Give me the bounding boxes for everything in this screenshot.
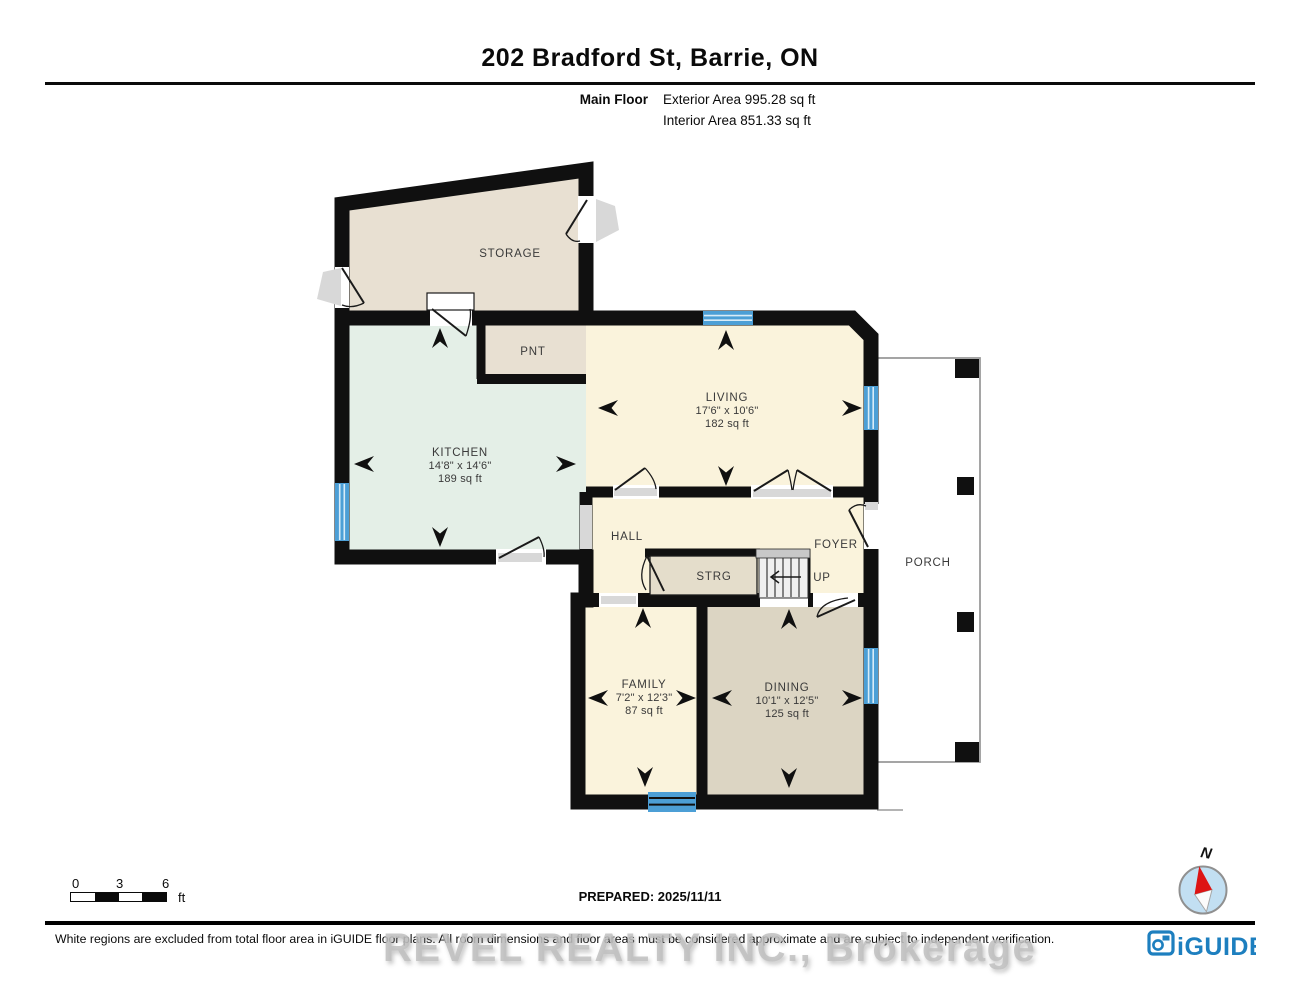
label-family-area: 87 sq ft — [625, 705, 663, 717]
label-porch: PORCH — [905, 557, 951, 569]
label-storage: STORAGE — [479, 248, 541, 260]
opening-hall-kitchen — [580, 505, 592, 549]
label-kitchen-area: 189 sq ft — [438, 473, 482, 485]
label-kitchen: KITCHEN — [432, 447, 488, 459]
label-hall: HALL — [611, 531, 643, 543]
iguide-wordmark: iGUIDE — [1177, 933, 1256, 961]
door-family-top — [599, 593, 638, 607]
window-dining-right — [864, 648, 878, 704]
window-living-right — [864, 386, 878, 430]
label-living: LIVING — [706, 392, 749, 404]
window-kitchen-left — [335, 483, 349, 541]
label-living-area: 182 sq ft — [705, 418, 749, 430]
window-living-top — [703, 311, 753, 325]
label-strg: STRG — [696, 571, 731, 583]
compass-north-label: N — [1199, 844, 1214, 863]
footer-divider — [45, 921, 1255, 925]
prepared-date: PREPARED: 2025/11/11 — [0, 889, 1300, 904]
iguide-camera-icon — [1149, 932, 1173, 954]
staircase — [756, 549, 810, 598]
compass: N — [1160, 838, 1250, 928]
floorplan-page: 202 Bradford St, Barrie, ON Main Floor E… — [0, 0, 1300, 1005]
label-living-dims: 17'6" x 10'6" — [696, 405, 759, 417]
label-dining: DINING — [764, 682, 809, 694]
label-up: UP — [813, 572, 831, 584]
label-family: FAMILY — [622, 679, 667, 691]
window-family-bottom — [648, 792, 696, 812]
label-kitchen-dims: 14'8" x 14'6" — [429, 460, 492, 472]
label-family-dims: 7'2" x 12'3" — [616, 692, 673, 704]
label-foyer: FOYER — [814, 539, 858, 551]
label-dining-dims: 10'1" x 12'5" — [756, 695, 819, 707]
brokerage-watermark: REVEL REALTY INC., Brokerage — [383, 926, 1036, 971]
floorplan-drawing: STORAGE PNT KITCHEN LIVING HALL FOYER ST… — [0, 0, 1300, 1005]
label-pnt: PNT — [520, 346, 545, 358]
iguide-logo: iGUIDE — [1146, 924, 1256, 964]
label-dining-area: 125 sq ft — [765, 708, 809, 720]
